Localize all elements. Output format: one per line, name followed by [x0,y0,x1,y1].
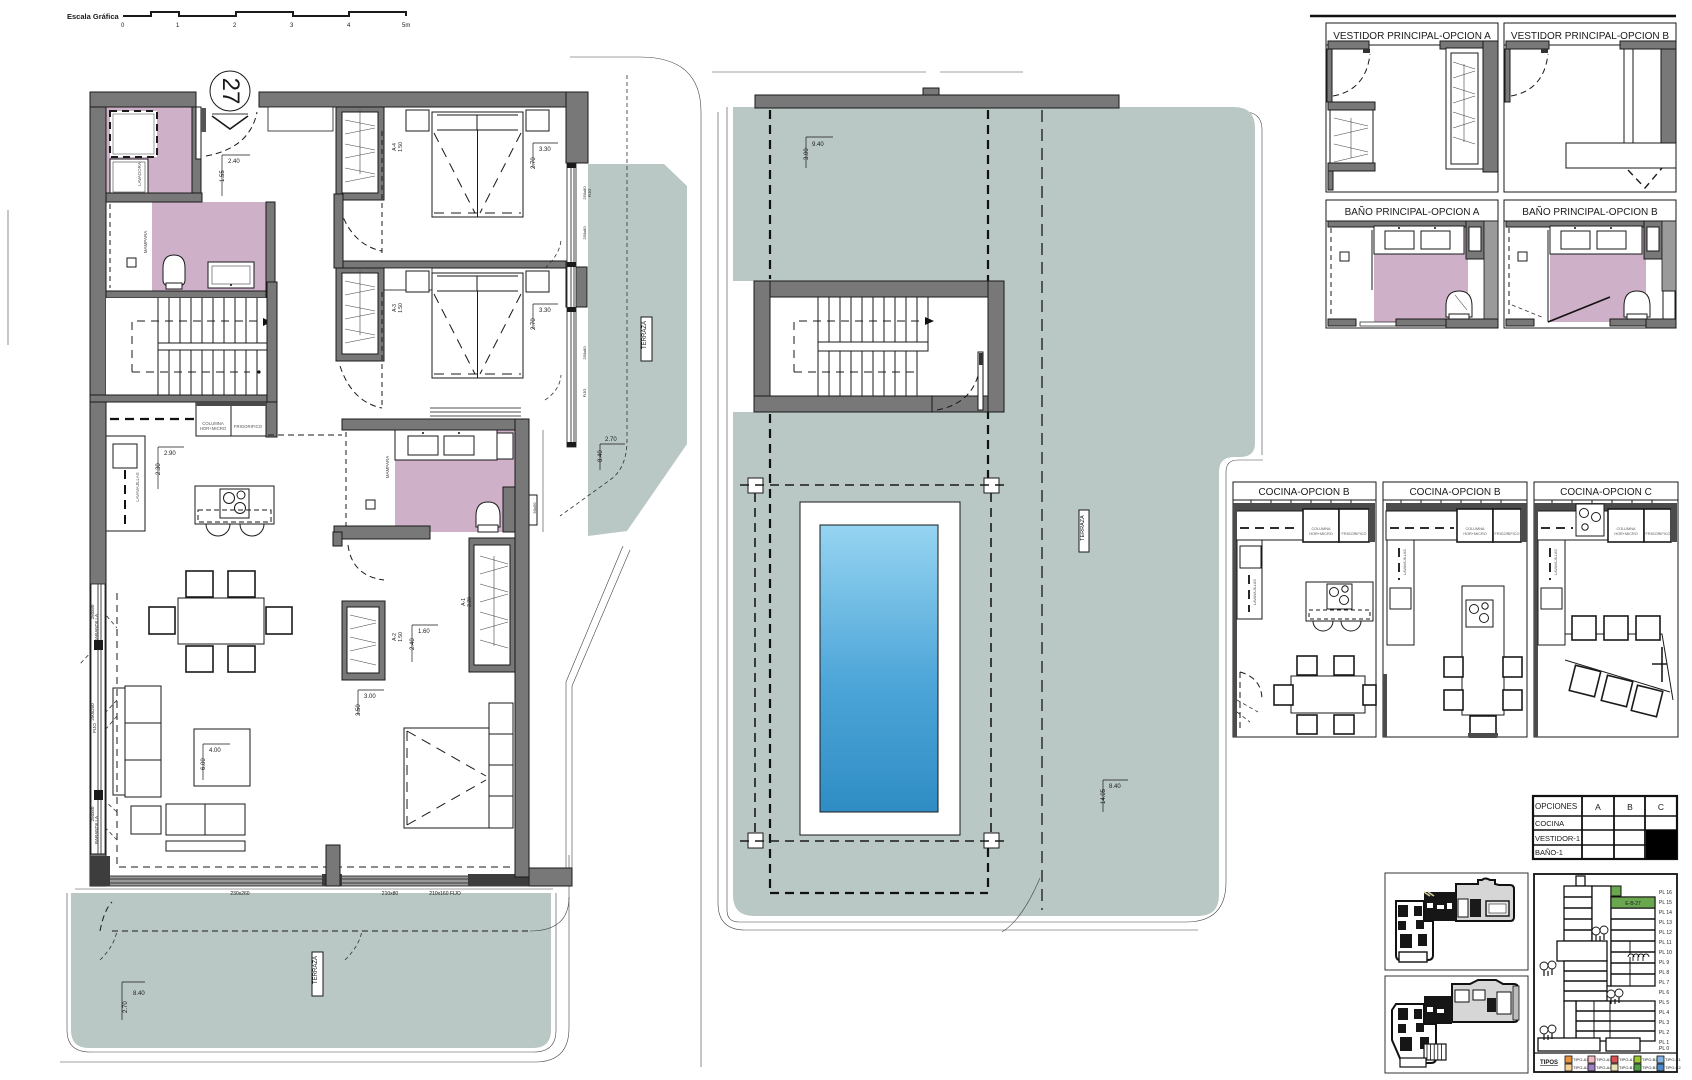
svg-text:210x160 FIJO: 210x160 FIJO [429,891,461,897]
svg-text:BAÑO-1: BAÑO-1 [1535,848,1563,857]
svg-text:B: B [1627,802,1633,812]
svg-text:PL 2: PL 2 [1659,1030,1669,1036]
svg-text:PL 5: PL 5 [1659,1000,1669,1006]
svg-text:PL 15: PL 15 [1659,900,1672,906]
svg-text:2.70: 2.70 [605,437,617,443]
svg-text:8.40: 8.40 [598,450,604,462]
svg-text:230x260: 230x260 [230,891,249,897]
svg-text:2.90: 2.90 [164,451,176,457]
svg-text:BAÑO PRINCIPAL-OPCION B: BAÑO PRINCIPAL-OPCION B [1522,205,1658,218]
svg-text:2.40: 2.40 [228,159,240,165]
svg-text:COCINA: COCINA [1535,819,1564,828]
svg-text:14.05: 14.05 [1101,788,1107,804]
svg-text:PL 4: PL 4 [1659,1010,1669,1016]
svg-text:LAVAVAJILLAS: LAVAVAJILLAS [1403,549,1407,575]
svg-text:1.60: 1.60 [418,629,430,635]
svg-text:COLUMNA: COLUMNA [1312,527,1331,531]
svg-text:TIPOS: TIPOS [1540,1060,1558,1066]
svg-text:COLUMNA: COLUMNA [1466,527,1485,531]
svg-text:VESTIDOR PRINCIPAL-OPCION A: VESTIDOR PRINCIPAL-OPCION A [1333,31,1491,42]
svg-text:50x50: 50x50 [532,502,537,514]
svg-text:LAVAVAJILLAS: LAVAVAJILLAS [1253,579,1257,605]
svg-text:TIPO-A3: TIPO-A3 [1596,1057,1612,1062]
svg-text:FIJO: FIJO [582,389,587,398]
svg-text:4: 4 [347,23,351,29]
svg-text:TERRAZA: TERRAZA [1080,515,1086,541]
svg-text:3.30: 3.30 [539,308,551,314]
svg-text:TIPO-A7: TIPO-A7 [1619,1057,1635,1062]
svg-text:TIPO-B1: TIPO-B1 [1619,1065,1635,1070]
svg-text:MAMPARA: MAMPARA [385,456,390,478]
svg-text:1.50: 1.50 [398,142,404,152]
svg-text:PL 6: PL 6 [1659,990,1669,996]
svg-text:FIJO: FIJO [92,723,97,733]
svg-text:3: 3 [290,23,294,29]
svg-text:VESTIDOR PRINCIPAL-OPCION B: VESTIDOR PRINCIPAL-OPCION B [1511,31,1670,42]
svg-text:PL 0: PL 0 [1659,1046,1669,1052]
svg-text:2.70: 2.70 [531,318,537,330]
svg-text:COCINA-OPCION B: COCINA-OPCION B [1409,487,1500,498]
svg-text:TERRAZA: TERRAZA [313,956,319,984]
svg-text:VESTIDOR-1: VESTIDOR-1 [1535,834,1580,843]
svg-text:TIPO-B2: TIPO-B2 [1642,1057,1658,1062]
svg-text:TIPO-A1: TIPO-A1 [1573,1057,1589,1062]
svg-text:TIPO-C1: TIPO-C1 [1665,1057,1682,1062]
svg-text:1.55: 1.55 [220,170,226,182]
svg-text:250x80: 250x80 [582,346,587,360]
svg-text:E-B-27: E-B-27 [1625,901,1641,907]
svg-text:3.30: 3.30 [539,147,551,153]
svg-text:COCINA-OPCION C: COCINA-OPCION C [1560,487,1652,498]
svg-text:3.50: 3.50 [356,704,362,716]
svg-text:1: 1 [176,23,180,29]
svg-text:TERRAZA: TERRAZA [642,321,648,349]
svg-text:250x80: 250x80 [582,226,587,240]
svg-text:8.40: 8.40 [1109,784,1121,790]
svg-text:1.50: 1.50 [398,632,404,642]
svg-text:TIPO-B3: TIPO-B3 [1642,1065,1658,1070]
svg-text:COCINA-OPCION B: COCINA-OPCION B [1258,487,1349,498]
svg-text:HOR+MICRO: HOR+MICRO [1614,532,1637,536]
svg-text:210x80: 210x80 [382,891,399,897]
svg-text:MAMPARA: MAMPARA [143,231,148,253]
svg-text:FRIGORIFICO: FRIGORIFICO [1646,532,1671,536]
svg-text:BARANDILLA: BARANDILLA [94,614,99,642]
svg-text:2: 2 [233,23,237,29]
svg-text:2.20: 2.20 [467,597,473,607]
svg-text:LAVADORA: LAVADORA [137,162,142,186]
svg-text:FRIGORIFICO: FRIGORIFICO [1342,532,1367,536]
svg-text:C: C [1658,802,1664,812]
svg-text:250x250: 250x250 [90,703,95,721]
svg-text:2.30: 2.30 [156,463,162,475]
svg-text:8.40: 8.40 [133,991,145,997]
svg-text:PL 10: PL 10 [1659,950,1672,956]
svg-text:3.00: 3.00 [804,148,810,160]
svg-text:HOR+MICRO: HOR+MICRO [200,426,227,431]
svg-text:FRIGORIFICO: FRIGORIFICO [1495,532,1520,536]
svg-text:6.00: 6.00 [201,758,207,770]
svg-text:3.00: 3.00 [364,694,376,700]
svg-text:PL 3: PL 3 [1659,1020,1669,1026]
svg-text:A: A [1595,802,1601,812]
svg-text:0: 0 [121,23,125,29]
svg-text:2.40: 2.40 [410,638,416,650]
svg-text:PL 13: PL 13 [1659,920,1672,926]
svg-text:HOR+MICRO: HOR+MICRO [1309,532,1332,536]
svg-text:PL 14: PL 14 [1659,910,1672,916]
svg-text:FIJO: FIJO [587,189,592,198]
svg-text:TIPO-A4: TIPO-A4 [1596,1065,1612,1070]
svg-text:2.70: 2.70 [531,157,537,169]
svg-text:1.50: 1.50 [398,303,404,313]
svg-text:BAÑO PRINCIPAL-OPCION A: BAÑO PRINCIPAL-OPCION A [1345,205,1480,218]
svg-text:9.40: 9.40 [812,142,824,148]
svg-text:OPCIONES: OPCIONES [1535,802,1577,811]
svg-text:TIPO-A2: TIPO-A2 [1573,1065,1589,1070]
svg-text:4.00: 4.00 [209,748,221,754]
svg-text:LAVAVAJILLAS: LAVAVAJILLAS [135,472,140,501]
svg-text:BARANDILLA: BARANDILLA [94,816,99,844]
svg-text:27: 27 [217,78,244,105]
svg-text:PL 7: PL 7 [1659,980,1669,986]
svg-text:COLUMNA: COLUMNA [1617,527,1636,531]
svg-text:PL 8: PL 8 [1659,970,1669,976]
svg-text:5m: 5m [402,23,410,29]
svg-text:Escala Gráfica: Escala Gráfica [67,12,120,21]
svg-text:PL 9: PL 9 [1659,960,1669,966]
svg-text:HOR+MICRO: HOR+MICRO [1463,532,1486,536]
svg-text:TIPO-C2: TIPO-C2 [1665,1065,1682,1070]
svg-text:PL 16: PL 16 [1659,890,1672,896]
svg-text:PL 11: PL 11 [1659,940,1672,946]
svg-text:LAVAVAJILLAS: LAVAVAJILLAS [1554,549,1558,575]
svg-text:FRIGORIFICO: FRIGORIFICO [234,424,263,429]
svg-text:2.70: 2.70 [123,1001,129,1013]
svg-text:PL 12: PL 12 [1659,930,1672,936]
